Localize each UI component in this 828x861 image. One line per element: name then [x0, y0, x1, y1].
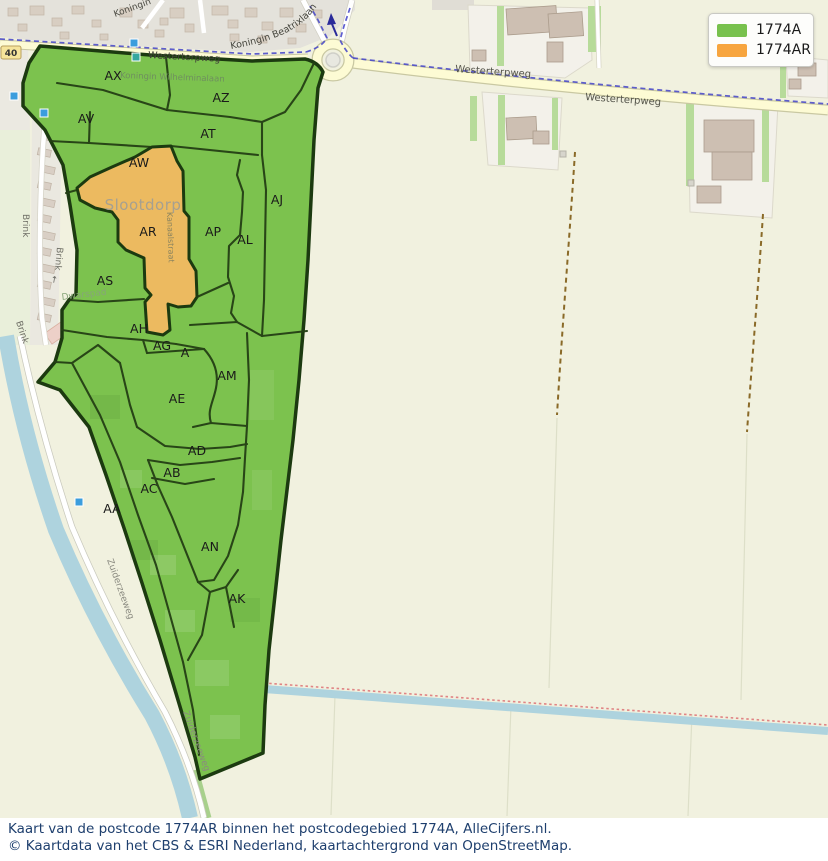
- region-label-AN: AN: [201, 539, 219, 554]
- region-label-AR: AR: [139, 224, 157, 239]
- legend-label-1774ar: 1774AR: [756, 42, 811, 58]
- road-shield: 40: [1, 46, 21, 59]
- region-label-AB: AB: [163, 465, 180, 480]
- region-label-AJ: AJ: [271, 192, 283, 207]
- caption-line-2: © Kaartdata van het CBS & ESRI Nederland…: [8, 838, 828, 855]
- legend-swatch-1774ar: [717, 44, 747, 57]
- region-label-AL: AL: [237, 232, 253, 247]
- street-label: Brink: [20, 214, 30, 238]
- map-canvas[interactable]: Slootdorp Koningin Beatrixlaan Westerter…: [0, 0, 828, 818]
- legend-label-1774a: 1774A: [756, 22, 801, 38]
- region-label-AD: AD: [188, 443, 206, 458]
- region-label-A: A: [181, 345, 190, 360]
- map-marker-icon[interactable]: [132, 53, 140, 61]
- region-label-AS: AS: [97, 273, 114, 288]
- legend: 1774A 1774AR: [708, 13, 814, 67]
- region-label-AA: AA: [103, 501, 121, 516]
- road-shield-number: 40: [5, 49, 18, 59]
- region-label-AM: AM: [217, 368, 236, 383]
- legend-row-1774a: 1774A: [717, 20, 805, 40]
- map-marker-icon[interactable]: [10, 92, 18, 100]
- street-label: Kanaalstraat: [165, 212, 176, 263]
- region-label-AT: AT: [200, 126, 216, 141]
- region-label-AX: AX: [104, 68, 122, 83]
- region-label-AW: AW: [129, 155, 149, 170]
- region-label-AE: AE: [169, 391, 186, 406]
- caption-line-1: Kaart van de postcode 1774AR binnen het …: [8, 821, 828, 838]
- map-marker-icon[interactable]: [75, 498, 83, 506]
- region-label-AK: AK: [229, 591, 247, 606]
- map-marker-icon[interactable]: [40, 109, 48, 117]
- caption: Kaart van de postcode 1774AR binnen het …: [0, 818, 828, 861]
- verge-west: [0, 130, 30, 345]
- legend-swatch-1774a: [717, 24, 747, 37]
- screenshot-root: Slootdorp Koningin Beatrixlaan Westerter…: [0, 0, 828, 861]
- legend-row-1774ar: 1774AR: [717, 40, 805, 60]
- street-label: Brink: [52, 247, 64, 272]
- region-label-AZ: AZ: [212, 90, 229, 105]
- region-label-AH: AH: [130, 321, 148, 336]
- region-label-AC: AC: [140, 481, 157, 496]
- map-viewport[interactable]: Slootdorp Koningin Beatrixlaan Westerter…: [0, 0, 828, 818]
- region-label-AV: AV: [78, 111, 95, 126]
- region-label-AP: AP: [205, 224, 222, 239]
- map-marker-icon[interactable]: [130, 39, 138, 47]
- roundabout-island: [326, 53, 340, 67]
- region-label-AG: AG: [153, 338, 171, 353]
